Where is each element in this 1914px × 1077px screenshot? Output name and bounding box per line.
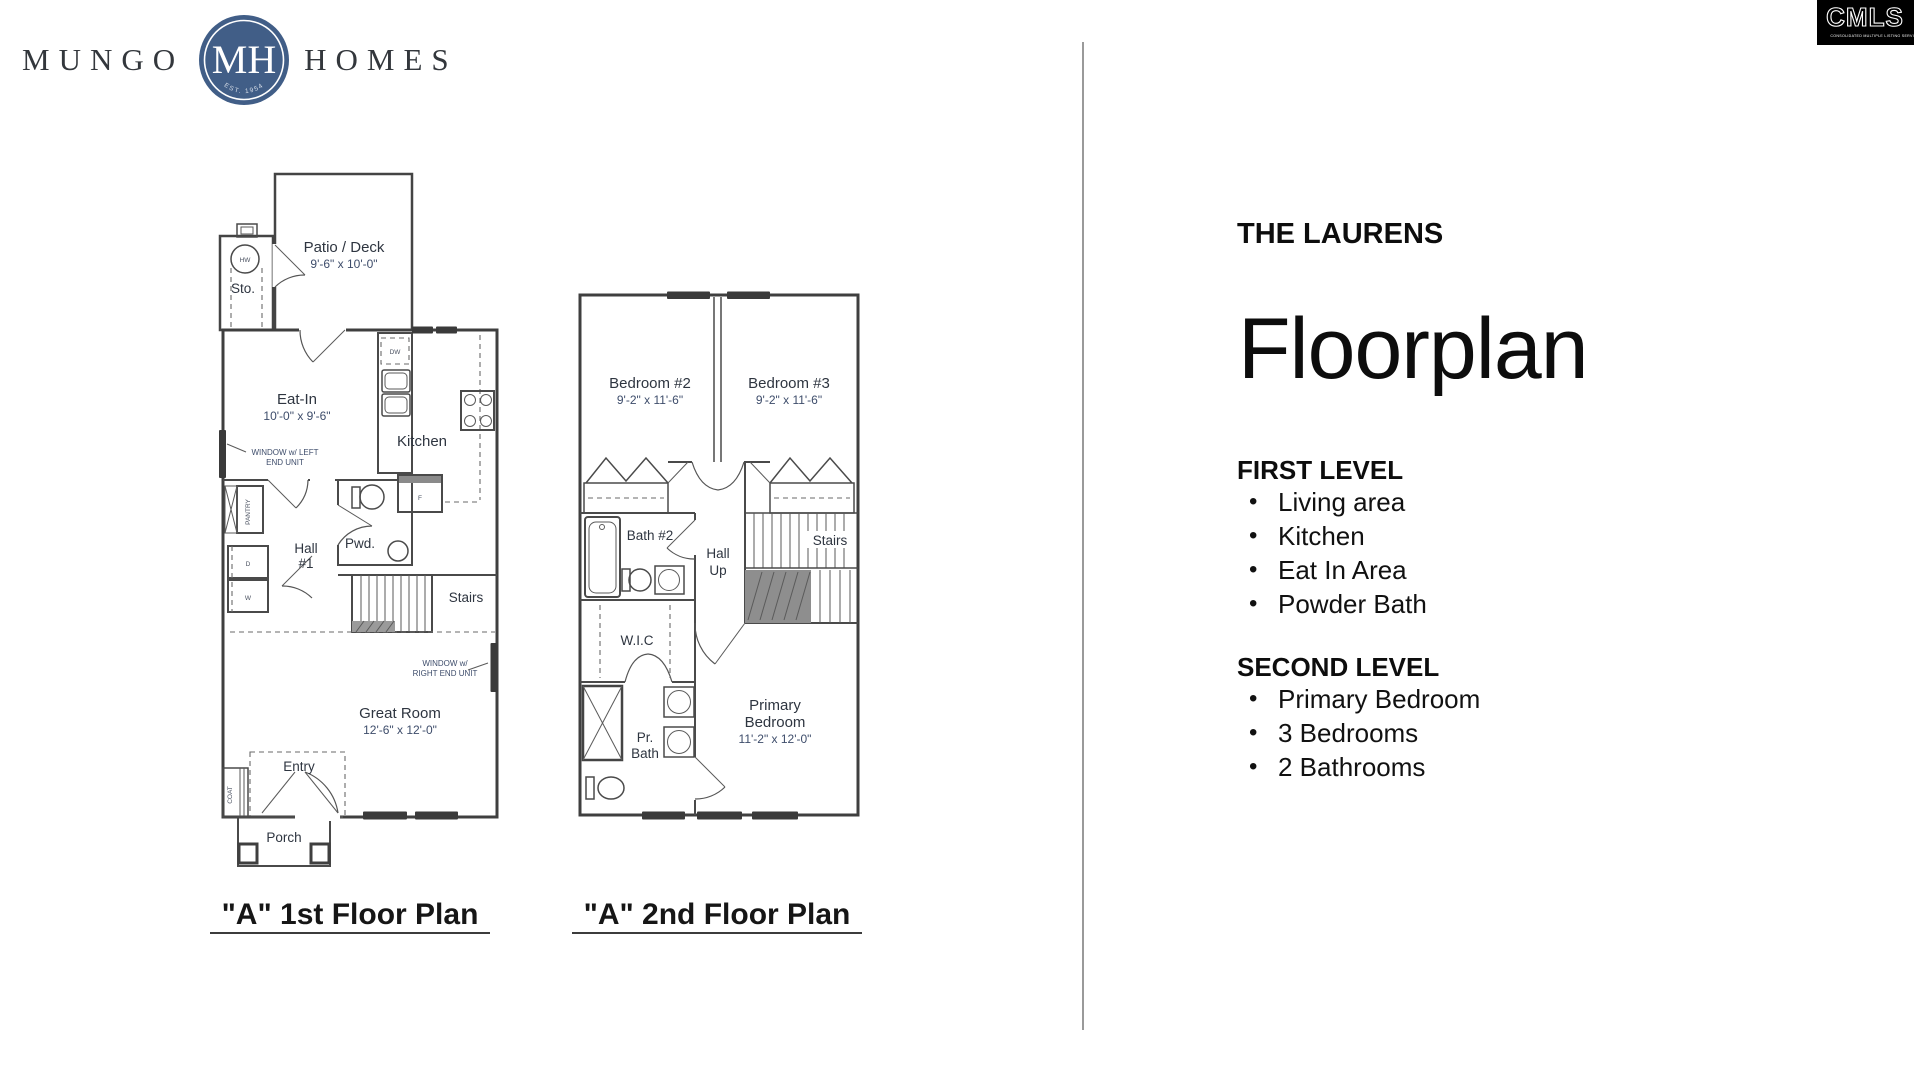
first-level-section: FIRST LEVEL • Living area • Kitchen • Ea… xyxy=(1237,455,1657,621)
plan2-caption: "A" 2nd Floor Plan xyxy=(584,898,851,931)
plan2-closets xyxy=(584,458,854,513)
room-dims-great-room: 12'-6" x 12'-0" xyxy=(363,723,437,737)
page-title: Floorplan xyxy=(1238,300,1588,399)
plan-name-heading: THE LAURENS xyxy=(1237,218,1443,251)
note-window-right-line1: WINDOW w/ xyxy=(422,659,468,668)
feature-item: • Powder Bath xyxy=(1237,587,1657,621)
room-label-bedroom3: Bedroom #3 xyxy=(748,375,830,392)
second-floor-plan-drawing: Bedroom #2 9'-2" x 11'-6" Bedroom #3 9'-… xyxy=(555,230,905,945)
note-window-left-line1: WINDOW w/ LEFT xyxy=(251,448,318,457)
room-label-pr-bath-line2: Bath xyxy=(631,746,659,761)
first-floor-plan-drawing: Patio / Deck 9'-6" x 10'-0" Sto. HW Eat-… xyxy=(170,130,530,945)
room-label-hall1-line1: Hall xyxy=(294,541,317,556)
mungo-homes-logo: MUNGO MH EST. 1954 HOMES xyxy=(22,14,458,106)
room-label-bedroom2: Bedroom #2 xyxy=(609,375,691,392)
room-label-hall-up-line2: Up xyxy=(709,563,726,578)
room-dims-patio: 9'-6" x 10'-0" xyxy=(310,257,377,271)
coat-label: COAT xyxy=(227,786,234,804)
plan2-caption-underline xyxy=(572,932,862,934)
room-label-powder: Pwd. xyxy=(345,536,375,551)
cmls-acronym: CMLS xyxy=(1826,2,1904,32)
room-label-stairs1: Stairs xyxy=(449,590,484,605)
logo-word-mungo: MUNGO xyxy=(22,14,184,106)
room-label-hall1-line2: #1 xyxy=(298,556,313,571)
bullet-icon: • xyxy=(1237,682,1278,716)
room-label-entry: Entry xyxy=(283,759,315,774)
feature-item: • Eat In Area xyxy=(1237,553,1657,587)
dryer-label: D xyxy=(246,561,251,568)
plan1-fixtures xyxy=(225,245,494,632)
note-window-right-line2: RIGHT END UNIT xyxy=(413,669,478,678)
section-heading-second-level: SECOND LEVEL xyxy=(1237,652,1657,682)
logo-word-homes: HOMES xyxy=(304,14,458,106)
section-heading-first-level: FIRST LEVEL xyxy=(1237,455,1657,485)
plan1-caption-underline xyxy=(210,932,490,934)
feature-label: Living area xyxy=(1278,485,1405,519)
second-level-section: SECOND LEVEL • Primary Bedroom • 3 Bedro… xyxy=(1237,652,1657,784)
room-label-bath2: Bath #2 xyxy=(627,528,674,543)
washer-label: W xyxy=(245,595,252,602)
feature-item: • Kitchen xyxy=(1237,519,1657,553)
vertical-divider xyxy=(1082,42,1084,1030)
room-label-great-room: Great Room xyxy=(359,705,441,722)
pantry-label: PANTRY xyxy=(245,498,252,524)
bullet-icon: • xyxy=(1237,587,1278,621)
room-dims-eat-in: 10'-0" x 9'-6" xyxy=(263,409,330,423)
room-dims-primary: 11'-2" x 12'-0" xyxy=(739,732,812,746)
water-heater-label: HW xyxy=(240,257,252,264)
flyer-page: MUNGO MH EST. 1954 HOMES CMLS CONSOLIDAT… xyxy=(0,0,1914,1077)
room-label-kitchen: Kitchen xyxy=(397,433,447,450)
feature-item: • 2 Bathrooms xyxy=(1237,750,1657,784)
room-label-stairs2: Stairs xyxy=(813,533,848,548)
feature-item: • Primary Bedroom xyxy=(1237,682,1657,716)
dishwasher-label: DW xyxy=(390,349,402,356)
room-label-pr-bath-line1: Pr. xyxy=(637,730,654,745)
cmls-logo-icon: CMLS CONSOLIDATED MULTIPLE LISTING SERVI… xyxy=(1817,0,1914,45)
mh-monogram-icon: MH EST. 1954 xyxy=(198,14,290,106)
feature-label: 3 Bedrooms xyxy=(1278,716,1418,750)
bullet-icon: • xyxy=(1237,553,1278,587)
feature-label: Eat In Area xyxy=(1278,553,1407,587)
plan1-walls xyxy=(220,174,497,866)
fridge-label: F xyxy=(418,495,422,502)
room-dims-bedroom3: 9'-2" x 11'-6" xyxy=(756,393,822,407)
feature-item: • Living area xyxy=(1237,485,1657,519)
cmls-subtitle: CONSOLIDATED MULTIPLE LISTING SERVICE xyxy=(1830,34,1914,38)
note-window-left-line2: END UNIT xyxy=(266,458,304,467)
bullet-icon: • xyxy=(1237,519,1278,553)
room-label-primary-line2: Bedroom xyxy=(745,714,806,731)
cmls-badge: CMLS CONSOLIDATED MULTIPLE LISTING SERVI… xyxy=(1817,0,1914,45)
feature-label: Kitchen xyxy=(1278,519,1365,553)
feature-label: Powder Bath xyxy=(1278,587,1427,621)
room-label-storage: Sto. xyxy=(231,281,255,296)
monogram-letters: MH xyxy=(212,37,276,82)
room-label-patio: Patio / Deck xyxy=(304,239,385,256)
room-label-wic: W.I.C xyxy=(621,633,654,648)
plan1-caption: "A" 1st Floor Plan xyxy=(222,898,479,931)
room-label-eat-in: Eat-In xyxy=(277,391,317,408)
bullet-icon: • xyxy=(1237,485,1278,519)
room-label-primary-line1: Primary xyxy=(749,697,801,714)
room-dims-bedroom2: 9'-2" x 11'-6" xyxy=(617,393,683,407)
plan1-windows xyxy=(219,327,498,820)
room-label-porch: Porch xyxy=(266,830,301,845)
feature-label: Primary Bedroom xyxy=(1278,682,1480,716)
bullet-icon: • xyxy=(1237,716,1278,750)
room-label-hall-up-line1: Hall xyxy=(706,546,729,561)
feature-label: 2 Bathrooms xyxy=(1278,750,1425,784)
bullet-icon: • xyxy=(1237,750,1278,784)
feature-item: • 3 Bedrooms xyxy=(1237,716,1657,750)
